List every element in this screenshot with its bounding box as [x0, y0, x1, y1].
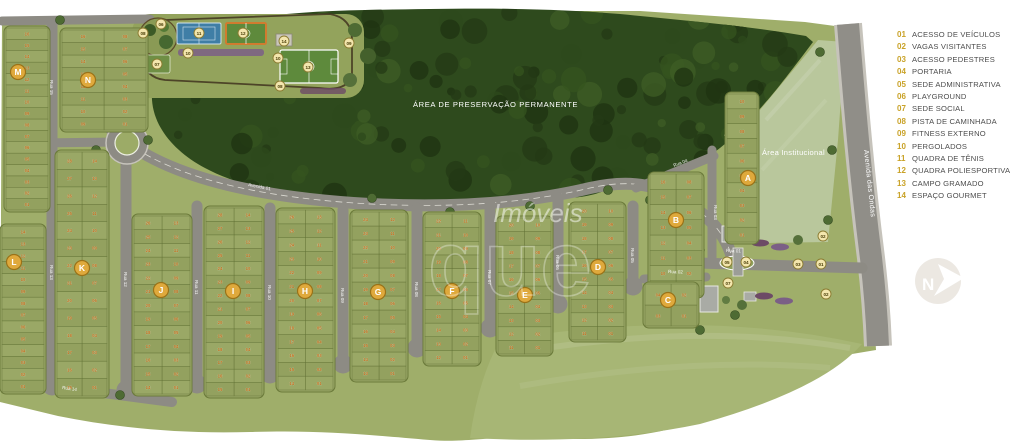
tree	[56, 16, 65, 25]
lot-number: 24	[67, 228, 72, 233]
forest-tree	[381, 24, 399, 42]
forest-tree	[462, 18, 488, 44]
tree	[116, 391, 125, 400]
block-marker-H: H	[298, 284, 313, 299]
lot-number: 18	[67, 333, 72, 338]
lot-number: 02	[246, 374, 251, 379]
lot-number: 15	[25, 43, 30, 48]
lot-number: 01	[174, 385, 179, 390]
poi-marker-number: 05	[724, 260, 730, 265]
lot-number: 04	[687, 240, 692, 245]
lot-number: 17	[146, 344, 151, 349]
block-marker-D: D	[591, 260, 606, 275]
forest-tree	[646, 153, 659, 166]
lot-number: 15	[363, 343, 368, 348]
lot-number: 23	[363, 231, 368, 236]
block-J: 0102030405060708091011121314151617181920…	[132, 214, 192, 396]
poi-marker-10: 10	[183, 48, 193, 58]
tree	[816, 48, 825, 57]
forest-tree	[550, 10, 570, 30]
lot-number: 19	[289, 312, 294, 317]
lot-number: 04	[21, 348, 26, 353]
poi-marker-number: 09	[346, 41, 352, 46]
lot-number: 17	[289, 339, 294, 344]
lot-number: 18	[289, 325, 294, 330]
forest-tree	[729, 62, 739, 72]
block-marker-C: C	[661, 293, 676, 308]
lot-number: 04	[390, 329, 395, 334]
lot-number: 14	[661, 210, 666, 215]
legend-item-number: 02	[897, 42, 908, 51]
lot-number: 21	[363, 259, 368, 264]
lot-number: 05	[687, 225, 692, 230]
legend-item-14: 14ESPAÇO GOURMET	[897, 191, 1023, 203]
lot-number: 07	[246, 307, 251, 312]
block-letter: M	[14, 67, 21, 77]
lot-number: 08	[390, 273, 395, 278]
lot-number: 08	[123, 34, 128, 39]
lot-number: 01	[740, 232, 745, 237]
poi-marker-number: 01	[818, 262, 824, 267]
lot-number: 02	[21, 372, 26, 377]
lot-number: 05	[123, 72, 128, 77]
lot-number: 15	[289, 367, 294, 372]
lot-number: 07	[174, 303, 179, 308]
lot-number: 01	[463, 355, 468, 360]
tree	[828, 146, 837, 155]
block-letter: A	[745, 173, 751, 183]
tree	[824, 216, 833, 225]
lot-number: 02	[317, 367, 322, 372]
lot-number: 12	[661, 240, 666, 245]
lot-number: 12	[436, 355, 441, 360]
legend-item-label: QUADRA POLIESPORTIVA	[912, 166, 1010, 175]
forest-tree	[561, 67, 586, 92]
forest-tree	[570, 146, 595, 171]
lot-number: 04	[246, 347, 251, 352]
forest-tree	[357, 109, 370, 122]
block-marker-K: K	[75, 261, 90, 276]
lot-number: 02	[687, 271, 692, 276]
lot-number: 02	[92, 368, 97, 373]
lot-number: 14	[246, 213, 251, 218]
lot-number: 10	[92, 228, 97, 233]
forest-tree	[665, 28, 681, 44]
lot-number: 06	[174, 316, 179, 321]
lot-number: 02	[608, 317, 613, 322]
lot-number: 11	[81, 97, 86, 102]
lot-number: 03	[463, 328, 468, 333]
forest-tree	[374, 41, 390, 57]
lot-number: 12	[25, 77, 30, 82]
lot-number: 13	[317, 215, 322, 220]
forest-tree	[411, 159, 425, 173]
lot-number: 16	[218, 374, 223, 379]
poi-marker-number: 07	[725, 281, 731, 286]
block-G: 0102030405060708091011121314151617181920…	[350, 210, 408, 382]
forest-tree	[592, 114, 604, 126]
poi-marker-number: 07	[154, 62, 160, 67]
forest-tree	[533, 122, 543, 132]
legend-item-label: PORTARIA	[912, 67, 952, 76]
lot-number: 24	[289, 242, 294, 247]
forest-tree	[732, 4, 746, 18]
lot-number: 05	[174, 330, 179, 335]
forest-tree	[268, 127, 279, 138]
lot-number: 13	[21, 242, 26, 247]
lot-number: 04	[174, 344, 179, 349]
lot-number: 09	[608, 222, 613, 227]
lot-number: 12	[21, 253, 26, 258]
block-letter: D	[595, 262, 601, 272]
lot-number: 05	[25, 157, 30, 162]
lot-number: 16	[661, 179, 666, 184]
block-letter: J	[159, 285, 164, 295]
tree	[144, 136, 153, 145]
forest-tree	[738, 36, 747, 45]
forest-tree	[446, 161, 466, 181]
lot-number: 22	[67, 263, 72, 268]
lot-number: 02	[682, 292, 687, 297]
lot-number: 28	[67, 159, 72, 164]
legend-item-07: 07SEDE SOCIAL	[897, 104, 1023, 116]
forest-tree	[514, 66, 524, 76]
block-letter: N	[85, 75, 91, 85]
lot-number: 08	[246, 293, 251, 298]
preservation-label: ÁREA DE PRESERVAÇÃO PERMANENTE	[413, 100, 578, 109]
lot-number: 06	[687, 210, 692, 215]
lot-number: 13	[661, 225, 666, 230]
tree	[368, 194, 377, 203]
lot-number: 14	[25, 54, 30, 59]
lot-number: 11	[317, 242, 322, 247]
lot-number: 22	[289, 270, 294, 275]
poi-marker-04: 04	[741, 257, 751, 267]
legend-item-number: 11	[897, 154, 908, 163]
forest-tree	[695, 122, 705, 132]
block-C: 01020304C	[643, 282, 699, 328]
poi-marker-number: 08	[277, 84, 283, 89]
block-letter: L	[11, 257, 16, 267]
lot-number: 18	[218, 347, 223, 352]
lot-number: 12	[246, 239, 251, 244]
legend-item-13: 13CAMPO GRAMADO	[897, 179, 1023, 191]
forest-tree	[292, 170, 306, 184]
lot-number: 25	[67, 211, 72, 216]
lot-number: 19	[67, 315, 72, 320]
block-marker-N: N	[81, 73, 96, 88]
lot-number: 07	[123, 47, 128, 52]
lot-number: 21	[146, 289, 151, 294]
lot-number: 03	[535, 318, 540, 323]
lot-number: 15	[661, 195, 666, 200]
legend-item-number: 07	[897, 104, 908, 113]
poi-marker-number: 04	[743, 260, 749, 265]
lot-number: 02	[740, 218, 745, 223]
tree	[604, 186, 613, 195]
forest-tree	[362, 20, 381, 39]
lot-number: 14	[21, 230, 26, 235]
lot-number: 06	[123, 59, 128, 64]
lot-number: 13	[246, 226, 251, 231]
lot-number: 23	[218, 280, 223, 285]
block-marker-M: M	[11, 65, 26, 80]
lot-number: 20	[146, 303, 151, 308]
lot-number: 12	[317, 229, 322, 234]
watermark: Imóveis que	[428, 198, 592, 315]
lot-number: 08	[317, 284, 322, 289]
legend-item-label: ACESSO DE VEÍCULOS	[912, 30, 1000, 39]
lot-number: 14	[436, 328, 441, 333]
lot-number: 06	[740, 158, 745, 163]
lot-number: 01	[390, 371, 395, 376]
legend-item-label: PLAYGROUND	[912, 92, 967, 101]
legend-item-label: QUADRA DE TÊNIS	[912, 154, 984, 163]
forest-tree	[711, 62, 719, 70]
lot-number: 09	[390, 259, 395, 264]
legend-item-number: 12	[897, 166, 908, 175]
lot-number: 11	[92, 211, 97, 216]
institutional-label: Área Institucional	[762, 148, 825, 157]
lot-number: 12	[390, 217, 395, 222]
lot-number: 12	[509, 331, 514, 336]
lot-number: 20	[363, 273, 368, 278]
lot-number: 26	[218, 239, 223, 244]
lot-number: 10	[174, 262, 179, 267]
legend-item-number: 14	[897, 191, 908, 200]
block-marker-J: J	[154, 283, 169, 298]
lot-number: 22	[363, 245, 368, 250]
lot-number: 14	[81, 59, 86, 64]
lot-number: 01	[535, 345, 540, 350]
lot-number: 01	[608, 331, 613, 336]
lot-number: 09	[81, 122, 86, 127]
lot-number: 03	[740, 203, 745, 208]
lot-number: 17	[218, 360, 223, 365]
poi-marker-10: 10	[273, 53, 283, 63]
block-K: 0102030405060708091011121314151617181920…	[55, 150, 109, 398]
lot-number: 10	[246, 266, 251, 271]
lot-number: 16	[363, 329, 368, 334]
poi-marker-12: 12	[238, 28, 248, 38]
road-label: Rua 08	[414, 282, 419, 297]
block-L: 0102030405060708091011121314L	[0, 224, 46, 394]
lot-number: 13	[92, 176, 97, 181]
lot-number: 07	[608, 249, 613, 254]
road-label: Rua 01	[726, 248, 741, 254]
poi-marker-number: 10	[185, 51, 191, 56]
lot-number: 07	[92, 281, 97, 286]
forest-tree	[251, 147, 271, 167]
lot-number: 06	[21, 325, 26, 330]
lot-number: 08	[687, 179, 692, 184]
lot-number: 09	[92, 246, 97, 251]
forest-tree	[542, 69, 556, 83]
poi-marker-number: 10	[275, 56, 281, 61]
lot-number: 10	[740, 99, 745, 104]
forest-tree	[459, 57, 471, 69]
lot-number: 17	[67, 350, 72, 355]
lot-number: 08	[608, 236, 613, 241]
legend-item-label: FITNESS EXTERNO	[912, 129, 986, 138]
lot-number: 05	[390, 315, 395, 320]
forest-tree	[641, 72, 666, 97]
lot-number: 09	[317, 270, 322, 275]
forest-tree	[674, 68, 693, 87]
lot-number: 10	[25, 100, 30, 105]
lot-number: 10	[390, 245, 395, 250]
road-label: Rua 09	[340, 288, 345, 303]
poi-marker-number: 13	[305, 65, 311, 70]
block-marker-B: B	[669, 213, 684, 228]
legend-item-number: 05	[897, 80, 908, 89]
forest-tree	[465, 85, 477, 97]
poi-marker-01: 01	[816, 259, 826, 269]
poi-marker-14: 14	[279, 36, 289, 46]
forest-tree	[561, 44, 582, 65]
legend-item-number: 09	[897, 129, 908, 138]
lot-number: 06	[246, 320, 251, 325]
lot-number: 01	[317, 381, 322, 386]
poi-marker-06: 06	[156, 19, 166, 29]
lot-number: 01	[25, 202, 30, 207]
poi-marker-number: 02	[820, 234, 826, 239]
lot-number: 01	[682, 313, 687, 318]
forest-tree	[440, 19, 460, 39]
lot-number: 03	[608, 304, 613, 309]
legend-item-12: 12QUADRA POLIESPORTIVA	[897, 166, 1023, 178]
block-letter: K	[79, 263, 86, 273]
lot-number: 11	[509, 345, 514, 350]
forest-tree	[777, 47, 797, 67]
legend-item-number: 04	[897, 67, 908, 76]
legend-item-06: 06PLAYGROUND	[897, 92, 1023, 104]
poi-marker-09: 09	[344, 38, 354, 48]
forest-tree	[429, 75, 442, 88]
poi-marker-02: 02	[818, 231, 828, 241]
forest-tree	[174, 131, 183, 140]
svg-text:que: que	[428, 213, 592, 315]
legend-item-label: CAMPO GRAMADO	[912, 179, 984, 188]
road-label: Rua 02	[668, 269, 683, 275]
lot-number: 20	[67, 298, 72, 303]
lot-number: 12	[582, 317, 587, 322]
lot-number: 16	[25, 31, 30, 36]
lot-number: 24	[218, 266, 223, 271]
block-letter: B	[673, 215, 679, 225]
poi-marker-08: 08	[138, 28, 148, 38]
road-label: Rua 03	[713, 205, 718, 220]
road-label: Rua 12	[123, 272, 128, 287]
lot-number: 23	[67, 246, 72, 251]
forest-tree	[601, 28, 612, 39]
forest-tree	[535, 147, 552, 164]
lot-number: 08	[21, 301, 26, 306]
legend-item-number: 03	[897, 55, 908, 64]
block-letter: H	[302, 286, 308, 296]
lot-number: 14	[363, 357, 368, 362]
tree	[731, 311, 740, 320]
lot-number: 05	[21, 336, 26, 341]
lot-number: 14	[92, 159, 97, 164]
lot-number: 08	[92, 263, 97, 268]
lot-number: 03	[246, 360, 251, 365]
poi-marker-number: 08	[140, 31, 146, 36]
lot-number: 01	[21, 384, 26, 389]
forest-tree	[332, 103, 357, 128]
block-H: 0102030405060708091011121314151617181920…	[276, 208, 335, 392]
masterplan-page: { "legend": { "items": [ {"num":"01","la…	[0, 0, 1024, 443]
legend-item-10: 10PERGOLADOS	[897, 142, 1023, 154]
lot-number: 19	[218, 333, 223, 338]
road-label: Rua 13	[49, 265, 54, 280]
poi-marker-03: 03	[793, 259, 803, 269]
poi-marker-05: 05	[722, 257, 732, 267]
legend-item-number: 01	[897, 30, 908, 39]
lot-number: 03	[656, 313, 661, 318]
legend-item-05: 05SEDE ADMINISTRATIVA	[897, 80, 1023, 92]
lot-number: 22	[218, 293, 223, 298]
lot-number: 18	[146, 330, 151, 335]
lot-number: 25	[146, 234, 151, 239]
legend-item-08: 08PISTA DE CAMINHADA	[897, 117, 1023, 129]
forest-tree	[559, 115, 578, 134]
lot-number: 04	[740, 188, 745, 193]
forest-tree	[230, 163, 249, 182]
lot-number: 11	[246, 253, 251, 258]
poi-marker-07: 07	[723, 278, 733, 288]
poi-marker-number: 06	[158, 22, 164, 27]
lot-number: 26	[289, 215, 294, 220]
lot-number: 25	[289, 229, 294, 234]
legend-item-09: 09FITNESS EXTERNO	[897, 129, 1023, 141]
lot-number: 22	[146, 275, 151, 280]
forest-tree	[502, 152, 522, 172]
lot-number: 23	[289, 256, 294, 261]
forest-tree	[678, 96, 691, 109]
lot-number: 03	[123, 97, 128, 102]
legend-item-label: VAGAS VISITANTES	[912, 42, 987, 51]
lot-number: 26	[146, 221, 151, 226]
lot-number: 09	[246, 280, 251, 285]
legend-item-label: PISTA DE CAMINHADA	[912, 117, 997, 126]
forest-tree	[404, 84, 413, 93]
poi-marker-number: 03	[795, 262, 801, 267]
poi-marker-number: 14	[281, 39, 287, 44]
forest-tree	[721, 24, 736, 39]
lot-number: 08	[25, 122, 30, 127]
lot-number: 10	[661, 271, 666, 276]
lot-number: 11	[390, 231, 395, 236]
legend-item-number: 06	[897, 92, 908, 101]
lot-number: 18	[363, 301, 368, 306]
lot-number: 02	[25, 191, 30, 196]
lot-number: 05	[608, 277, 613, 282]
block-M: 01020304050607080910111213141516M	[4, 26, 50, 212]
lot-number: 10	[21, 277, 26, 282]
forest-tree	[410, 61, 429, 80]
lot-number: 15	[218, 387, 223, 392]
lot-number: 03	[687, 256, 692, 261]
road-label: Rua 10	[267, 285, 272, 300]
lot-number: 11	[582, 331, 587, 336]
lot-number: 06	[317, 312, 322, 317]
forest-tree	[231, 133, 253, 155]
lot-number: 01	[246, 387, 251, 392]
lot-number: 07	[25, 134, 30, 139]
lot-number: 03	[390, 343, 395, 348]
lot-number: 09	[174, 275, 179, 280]
